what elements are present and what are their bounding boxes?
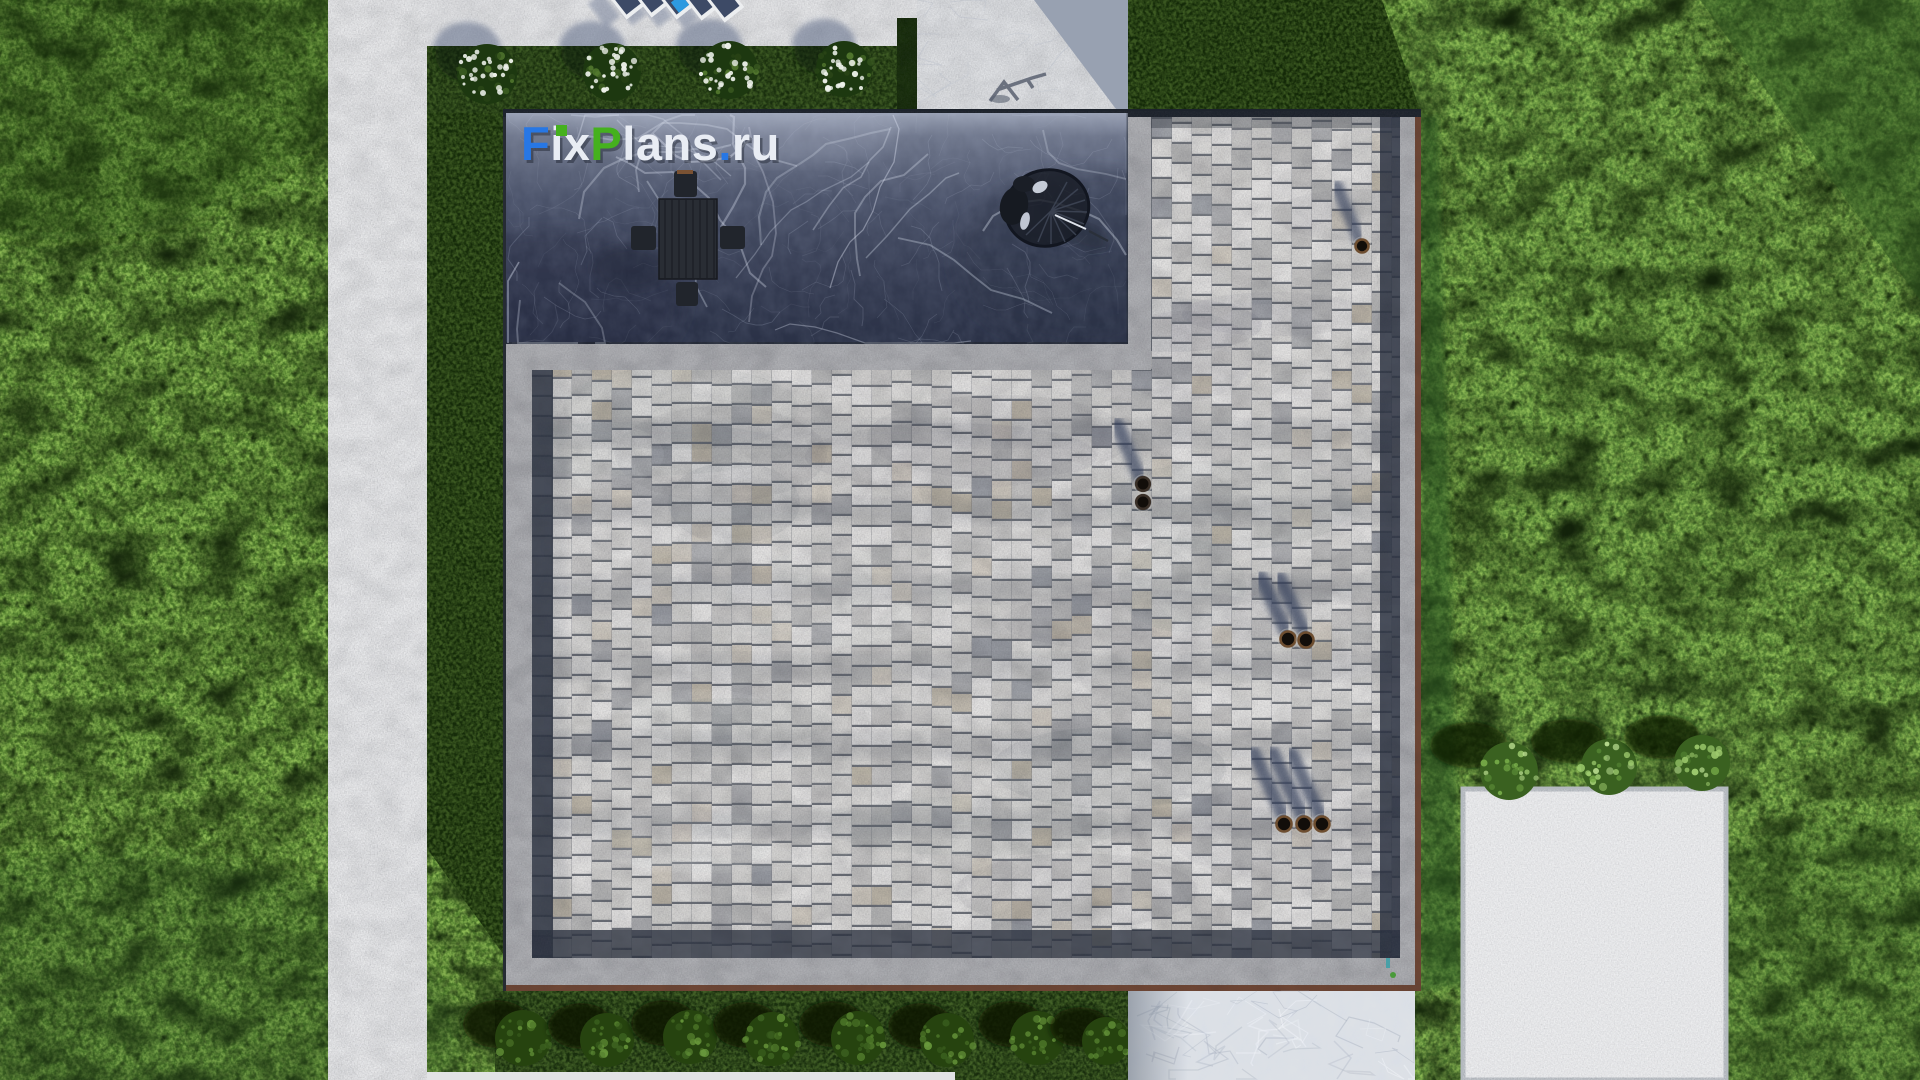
svg-text:FixPlans.ru: FixPlans.ru bbox=[521, 117, 780, 170]
